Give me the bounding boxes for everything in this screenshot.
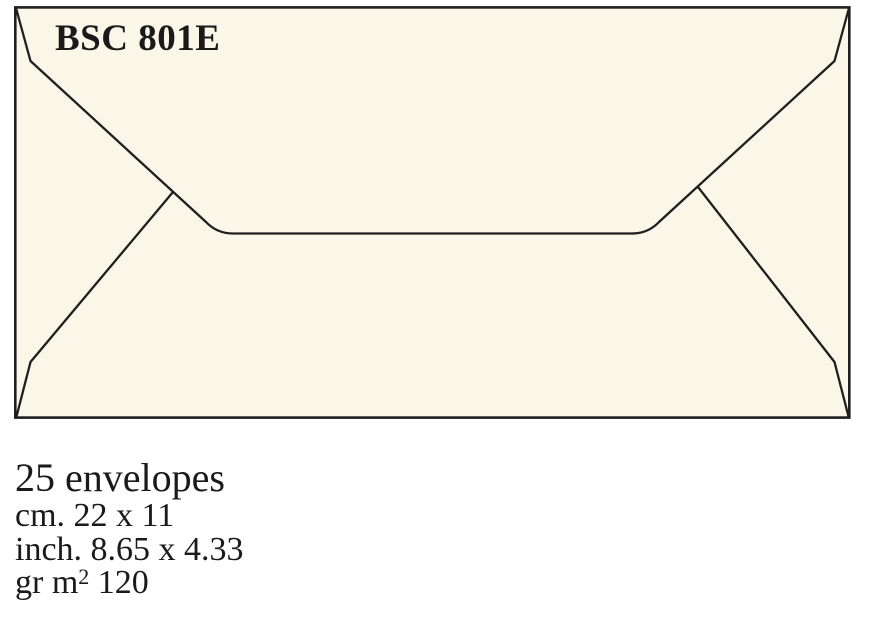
spec-size-inch: inch. 8.65 x 4.33 [15, 533, 244, 567]
spec-size-cm: cm. 22 x 11 [15, 499, 244, 533]
spec-grammage: gr m2 120 [15, 566, 244, 600]
envelope-body [15, 7, 849, 417]
spec-grammage-value: 120 [89, 564, 149, 601]
spec-grammage-prefix: gr m [15, 564, 78, 601]
product-specs: 25 envelopes cm. 22 x 11 inch. 8.65 x 4.… [15, 457, 244, 600]
product-card: BSC 801E 25 envelopes cm. 22 x 11 inch. … [0, 0, 876, 621]
envelope-model-title: BSC 801E [55, 20, 220, 57]
spec-grammage-superscript: 2 [78, 564, 89, 589]
spec-quantity: 25 envelopes [15, 457, 244, 499]
